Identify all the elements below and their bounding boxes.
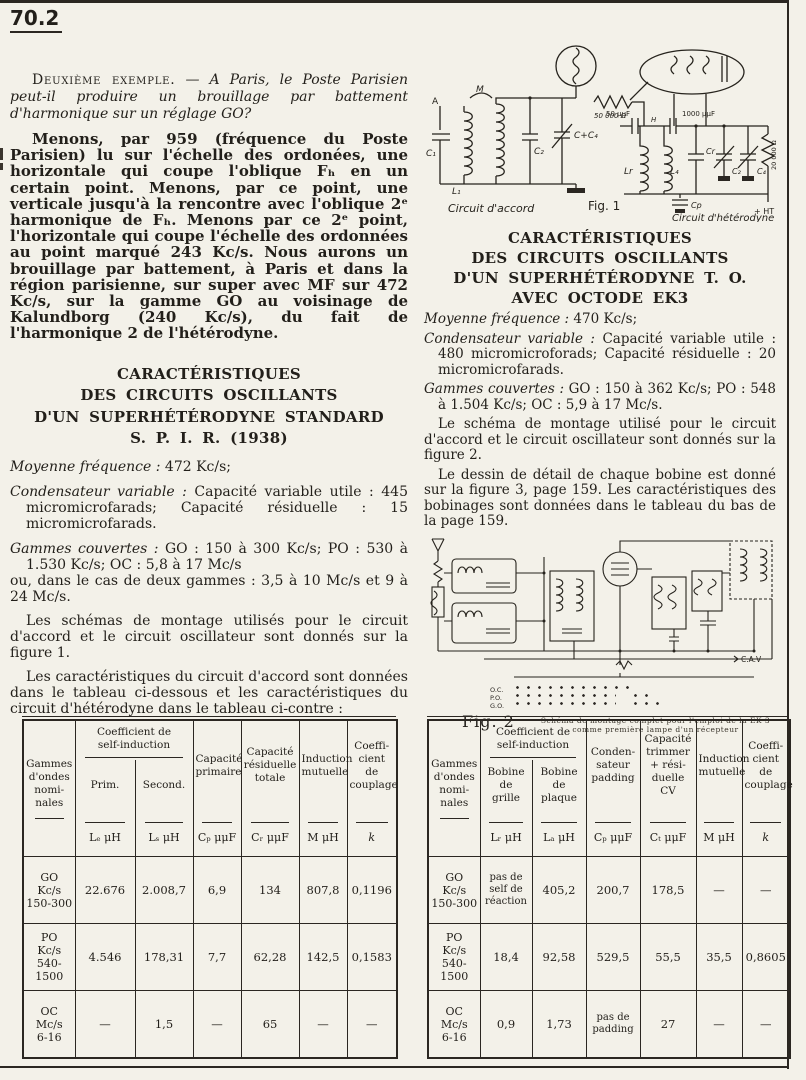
- oscillator-coil-box: [550, 571, 594, 641]
- menons-paragraph: Menons, par 959 (fréquence du Poste Pari…: [10, 131, 408, 342]
- unit-ct: Cₜ μμF: [640, 810, 696, 857]
- cell: 35,5: [696, 924, 742, 991]
- right-heading-line1: CARACTÉRISTIQUES: [424, 228, 776, 248]
- header-self-induction: Coefficient de self-induction: [75, 720, 193, 760]
- fig1-heterodyne-label: Circuit d'hétérodyne: [672, 212, 774, 222]
- intro-lead: Deuxième exemple.: [32, 72, 176, 88]
- unit-la: Lₐ μH: [532, 810, 586, 857]
- coil-l1: [464, 106, 472, 184]
- input-coil-box-2: [452, 603, 516, 643]
- cell: —: [696, 857, 742, 924]
- cell: —: [75, 991, 135, 1059]
- header-induction-mutuelle: Induction mutuelle: [696, 720, 742, 810]
- coupling-box-2-detail: [694, 579, 716, 651]
- legend-dots: [512, 685, 630, 690]
- legend-label-go: G.O.: [490, 702, 512, 710]
- row-label-oc: OC Mc/s 6-16: [23, 991, 75, 1059]
- junction-dot: [694, 124, 697, 127]
- junction-dot: [528, 96, 531, 99]
- varcap-ct: [714, 126, 734, 176]
- fig1-label-c1000: 1000 μμF: [682, 110, 715, 118]
- scan-artifact-tick: [0, 148, 3, 160]
- oscillator-coil-detail: [556, 579, 583, 633]
- cell: 0,1583: [347, 924, 397, 991]
- spec-lead: Condensateur variable :: [424, 331, 595, 347]
- cell: 7,7: [193, 924, 241, 991]
- cell: 178,31: [135, 924, 193, 991]
- octode-grids: [671, 56, 727, 82]
- coupling-box-1: [652, 577, 686, 629]
- cell: —: [299, 991, 347, 1059]
- cell: 200,7: [586, 857, 640, 924]
- fig1-label-ct: C₂: [732, 167, 742, 176]
- spec-value: 472 Kc/s;: [160, 459, 231, 475]
- right-heading-line2: DES CIRCUITS OSCILLANTS: [424, 248, 776, 268]
- junction-dot: [543, 571, 546, 574]
- fig1-accord-label: Circuit d'accord: [448, 202, 535, 215]
- header-condensateur-padding: Conden- sateur padding: [586, 720, 640, 810]
- right-heading-line3: D'UN SUPERHÉTÉRODYNE T. O.: [424, 268, 776, 288]
- legend-row-go: G.O.: [490, 699, 776, 707]
- unit-m: M μH: [696, 810, 742, 857]
- header-gammes: Gammes d'ondes nomi- nales: [23, 720, 75, 857]
- fig1-label-m: M: [476, 85, 484, 95]
- legend-dots: [630, 701, 660, 706]
- spec-moyenne-frequence-to: Moyenne fréquence : 470 Kc/s;: [424, 312, 776, 328]
- tube-grid-accord: [573, 48, 579, 188]
- scan-artifact-tick: [0, 163, 3, 170]
- cell: 92,58: [532, 924, 586, 991]
- coupling-box-1-detail: [654, 585, 679, 651]
- unit-ls: Lₛ μH: [135, 810, 193, 857]
- header-self-induction: Coefficient de self-induction: [480, 720, 586, 760]
- cell: —: [696, 991, 742, 1059]
- left-heading-line1: CARACTÉRISTIQUES: [10, 364, 408, 386]
- cell: 0,8605: [742, 924, 790, 991]
- spec-lead: Moyenne fréquence :: [10, 459, 160, 475]
- header-gammes: Gammes d'ondes nomi- nales: [428, 720, 480, 857]
- unit-cr: Cᵣ μμF: [241, 810, 299, 857]
- legend-dots: [512, 701, 616, 706]
- octode-tube-envelope: [640, 50, 744, 94]
- left-heading-line2: DES CIRCUITS OSCILLANTS: [10, 385, 408, 407]
- row-label-go: GO Kc/s 150-300: [23, 857, 75, 924]
- ek3-tube-detail: [611, 541, 730, 651]
- cell: 18,4: [480, 924, 532, 991]
- tableaux-paragraph: Les caractéristiques du circuit d'accord…: [10, 669, 408, 717]
- table-row-oc: OC Mc/s 6-16 0,9 1,73 pas de padding 27 …: [428, 991, 790, 1059]
- right-section-heading: CARACTÉRISTIQUES DES CIRCUITS OSCILLANTS…: [424, 228, 776, 308]
- coil-l4: [664, 126, 672, 194]
- junction-dot: [673, 649, 676, 652]
- cell: pas de self de réaction: [480, 857, 532, 924]
- cell: 6,9: [193, 857, 241, 924]
- cell: 62,28: [241, 924, 299, 991]
- cell: 1,73: [532, 991, 586, 1059]
- cell: 1,5: [135, 991, 193, 1059]
- ground-block-accord: [567, 188, 585, 193]
- junction-dot: [753, 649, 756, 652]
- antenna-branch: [432, 106, 450, 184]
- legend-dots: [512, 693, 616, 698]
- varcap-cc4: [552, 98, 572, 184]
- cell: —: [742, 991, 790, 1059]
- cell: 134: [241, 857, 299, 924]
- fig1-label-cc4: C+C₄: [574, 131, 598, 141]
- table-row-po: PO Kc/s 540-1500 4.546 178,31 7,7 62,28 …: [23, 924, 397, 991]
- input-coil-box-1: [452, 559, 516, 593]
- header-prim: Prim.: [75, 760, 135, 810]
- cell: —: [193, 991, 241, 1059]
- fig1-label-cr: Cr: [706, 147, 716, 156]
- coil-lr: [640, 126, 648, 194]
- fig1-label-c4: C₄: [757, 167, 767, 176]
- antenna-symbol: [432, 539, 444, 587]
- cell: 0,1196: [347, 857, 397, 924]
- table-row-po: PO Kc/s 540-1500 18,4 92,58 529,5 55,5 3…: [428, 924, 790, 991]
- junction-dot: [707, 649, 710, 652]
- cav-arrow: [720, 656, 738, 662]
- header-bobine-plaque: Bobine de plaque: [532, 760, 586, 810]
- scanned-document-page: 70.2 Deuxième exemple. — A Paris, le Pos…: [0, 0, 806, 1080]
- varcap-c4: [738, 126, 758, 176]
- cell: 529,5: [586, 924, 640, 991]
- header-capacite-trimmer: Capacité trimmer + rési- duelle CV: [640, 720, 696, 810]
- left-column: Deuxième exemple. — A Paris, le Poste Pa…: [10, 72, 408, 717]
- fig2-switch-legend: O.C. P.O. G.O.: [490, 683, 776, 707]
- cap-cr: [688, 126, 704, 194]
- fig1-label-l1: L₁: [452, 187, 461, 197]
- row-label-po: PO Kc/s 540-1500: [428, 924, 480, 991]
- if-transformer-box: [730, 541, 772, 599]
- cell: —: [347, 991, 397, 1059]
- legend-row-oc: O.C.: [490, 683, 776, 691]
- spec-condensateur: Condensateur variable : Capacité variabl…: [10, 484, 408, 532]
- fig1-label-a: A: [432, 97, 439, 107]
- cap-c2: [522, 98, 538, 184]
- cell: 65: [241, 991, 299, 1059]
- spec-value: 470 Kc/s;: [569, 311, 637, 327]
- intro-dash: —: [176, 72, 210, 88]
- unit-lr: Lᵣ μH: [480, 810, 532, 857]
- junction-dot: [722, 124, 725, 127]
- table-row-go: GO Kc/s 150-300 pas de self de réaction …: [428, 857, 790, 924]
- row-label-po: PO Kc/s 540-1500: [23, 924, 75, 991]
- header-second: Second.: [135, 760, 193, 810]
- unit-le: Lₑ μH: [75, 810, 135, 857]
- legend-dots: [630, 693, 656, 698]
- cell: 22.676: [75, 857, 135, 924]
- right-column: A C₁ L₁ M C₂ C+C₄ Circuit d'accord Fig. …: [424, 42, 776, 734]
- row-label-oc: OC Mc/s 6-16: [428, 991, 480, 1059]
- input-coil-1-detail: [444, 567, 544, 587]
- fig2-cav-label: C.A.V: [741, 655, 762, 664]
- cell: 405,2: [532, 857, 586, 924]
- fig1-caption: Fig. 1: [588, 199, 620, 213]
- accord-table: Gammes d'ondes nomi- nales Coefficient d…: [22, 716, 396, 1059]
- unit-k: k: [742, 810, 790, 857]
- cell: pas de padding: [586, 991, 640, 1059]
- legend-row-po: P.O.: [490, 691, 776, 699]
- accord-table-grid: Gammes d'ondes nomi- nales Coefficient d…: [22, 719, 398, 1059]
- spec-lead: Gammes couvertes :: [424, 381, 564, 397]
- header-capacite-residuelle: Capacité résiduelle totale: [241, 720, 299, 810]
- header-coefficient-couplage: Coeffi- cient de couplage: [742, 720, 790, 810]
- heterodyne-table: Gammes d'ondes nomi- nales Coefficient d…: [427, 716, 789, 1059]
- cell: 142,5: [299, 924, 347, 991]
- fig1-label-lr: Lr: [624, 167, 634, 177]
- left-section-heading: CARACTÉRISTIQUES DES CIRCUITS OSCILLANTS…: [10, 364, 408, 450]
- page-number: 70.2: [10, 6, 62, 33]
- ground-block-c4: [742, 176, 754, 181]
- table-row-oc: OC Mc/s 6-16 — 1,5 — 65 — —: [23, 991, 397, 1059]
- spec-moyenne-frequence: Moyenne fréquence : 472 Kc/s;: [10, 459, 408, 475]
- cell: 2.008,7: [135, 857, 193, 924]
- schemas-paragraph: Les schémas de montage utilisés pour le …: [10, 613, 408, 661]
- dessin-bobine-paragraph: Le dessin de détail de chaque bobine est…: [424, 468, 776, 530]
- spec-condensateur-to: Condensateur variable : Capacité variabl…: [424, 332, 776, 379]
- fig1-label-cp: Cp: [691, 201, 702, 210]
- spec-lead: Moyenne fréquence :: [424, 311, 569, 327]
- fig1-label-c2: C₂: [534, 147, 544, 157]
- cell: 55,5: [640, 924, 696, 991]
- left-heading-line3: D'UN SUPERHÉTÉRODYNE STANDARD: [10, 407, 408, 429]
- figure-2: C.A.V O.C. P.O. G.O. Fig. 2 Schéma de mo…: [424, 533, 776, 734]
- row-label-go: GO Kc/s 150-300: [428, 857, 480, 924]
- unit-cp: Cₚ μμF: [586, 810, 640, 857]
- spec-gammes-suite: ou, dans le cas de deux gammes : 3,5 à 1…: [10, 573, 408, 605]
- fig1-schematic: A C₁ L₁ M C₂ C+C₄ Circuit d'accord Fig. …: [424, 42, 776, 222]
- spec-gammes: Gammes couvertes : GO : 150 à 300 Kc/s; …: [10, 541, 408, 573]
- cell: 807,8: [299, 857, 347, 924]
- cell: 27: [640, 991, 696, 1059]
- junction-dot: [543, 619, 546, 622]
- spec-lead: Gammes couvertes :: [10, 541, 158, 557]
- unit-m: M μH: [299, 810, 347, 857]
- right-heading-line4: AVEC OCTODE EK3: [424, 288, 776, 308]
- input-coil-2-detail: [444, 611, 544, 633]
- left-heading-line4: S. P. I. R. (1938): [10, 428, 408, 450]
- header-bobine-grille: Bobine de grille: [480, 760, 532, 810]
- spec-gammes-to: Gammes couvertes : GO : 150 à 362 Kc/s; …: [424, 382, 776, 413]
- fig1-label-c1: C₁: [426, 149, 436, 159]
- fig1-label-r20k: 20 000 Ω: [770, 140, 776, 170]
- coupling-box-2: [692, 571, 722, 611]
- header-coefficient-couplage: Coeffi- cient de couplage: [347, 720, 397, 810]
- fig1-label-h: H: [651, 116, 657, 124]
- cell: —: [742, 857, 790, 924]
- cell: 4.546: [75, 924, 135, 991]
- header-induction-mutuelle: Induction mutuelle: [299, 720, 347, 810]
- fig1-label-l4: L₄: [670, 167, 679, 177]
- top-border-rule: [0, 0, 789, 3]
- bottom-border-rule: [0, 1066, 789, 1068]
- cell: 0,9: [480, 991, 532, 1059]
- intro-paragraph: Deuxième exemple. — A Paris, le Poste Pa…: [10, 72, 408, 123]
- spec-lead: Condensateur variable :: [10, 484, 187, 500]
- heterodyne-table-grid: Gammes d'ondes nomi- nales Coefficient d…: [427, 719, 791, 1059]
- cap-cp: [672, 194, 688, 205]
- fig1-label-c50: 50 μμF: [606, 110, 630, 118]
- header-capacite-primaire: Capacité primaire: [193, 720, 241, 810]
- unit-k: k: [347, 810, 397, 857]
- figure-1: A C₁ L₁ M C₂ C+C₄ Circuit d'accord Fig. …: [424, 42, 776, 222]
- junction-dot: [619, 649, 622, 652]
- fig2-schematic: C.A.V: [424, 533, 776, 681]
- coil-secondary: [496, 98, 576, 184]
- schema-figure2-paragraph: Le schéma de montage utilisé pour le cir…: [424, 417, 776, 464]
- ground-block-ct: [718, 176, 730, 181]
- unit-cp: Cₚ μμF: [193, 810, 241, 857]
- table-row-go: GO Kc/s 150-300 22.676 2.008,7 6,9 134 8…: [23, 857, 397, 924]
- cell: 178,5: [640, 857, 696, 924]
